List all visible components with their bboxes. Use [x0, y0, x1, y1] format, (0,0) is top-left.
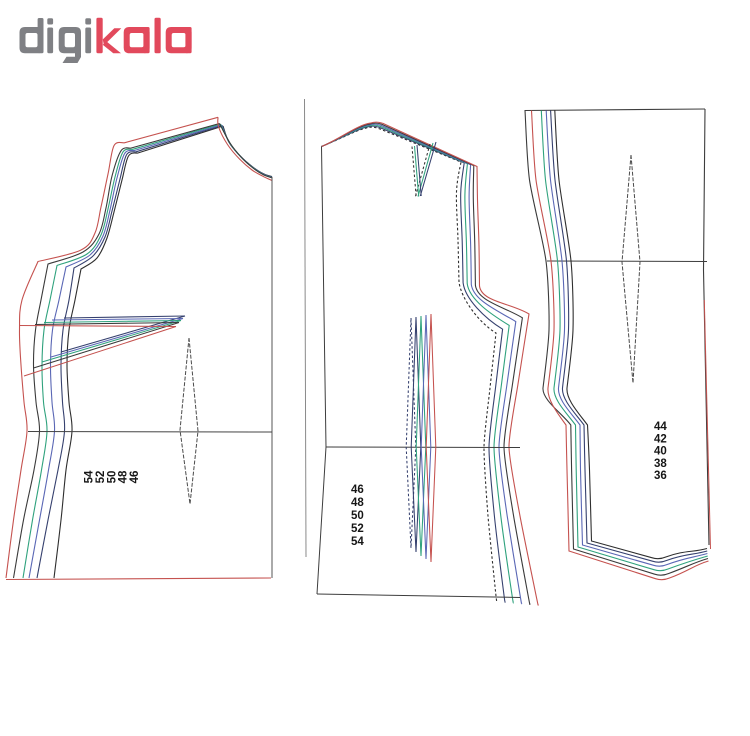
- svg-text:52: 52: [95, 471, 107, 484]
- svg-text:46: 46: [129, 471, 141, 484]
- svg-text:42: 42: [654, 433, 667, 445]
- svg-text:54: 54: [351, 536, 364, 548]
- svg-text:48: 48: [351, 497, 364, 509]
- svg-text:40: 40: [654, 446, 667, 458]
- svg-text:50: 50: [106, 471, 118, 484]
- svg-text:48: 48: [118, 470, 130, 483]
- svg-text:46: 46: [351, 484, 364, 496]
- svg-text:44: 44: [654, 421, 667, 433]
- svg-text:54: 54: [84, 470, 96, 483]
- svg-text:38: 38: [654, 458, 667, 470]
- svg-text:52: 52: [351, 523, 364, 535]
- svg-text:50: 50: [351, 510, 364, 522]
- svg-text:36: 36: [654, 470, 667, 482]
